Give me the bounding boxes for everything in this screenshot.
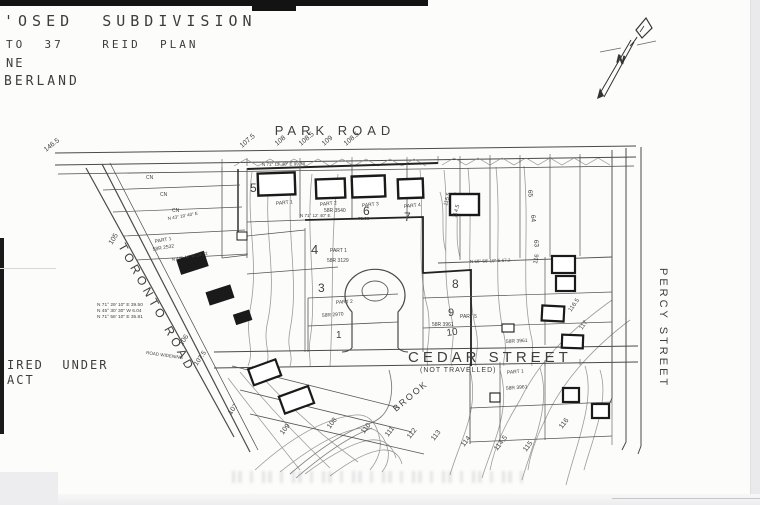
contour-label-107-5: 107.5	[239, 133, 257, 150]
contour-label-107-5b: 107.5	[193, 349, 208, 367]
north-arrow: N	[597, 18, 656, 99]
contour-label-117: 117	[579, 319, 590, 331]
bearing-right: N 68° 58' 10" E 67.2	[470, 258, 511, 264]
contour-lines	[228, 166, 630, 485]
plan-ref-3129: 58R 3129	[327, 258, 349, 264]
bearing-table: N 71° 29' 10" E 39.50 N 45° 30' 30" W 6.…	[97, 302, 143, 320]
lot-number-4: 4	[311, 242, 318, 257]
part-label-1: PART 1	[276, 199, 294, 207]
lot-number-9: 9	[448, 307, 454, 319]
road-label-park: PARK ROAD	[275, 123, 396, 138]
contour-label-116: 116	[558, 417, 570, 430]
lot-number-5: 5	[250, 181, 257, 195]
scan-edge-bottom-left	[0, 472, 58, 505]
contour-label-115: 115	[522, 440, 534, 453]
plan-drawing: N PARK ROAD TORONTO ROAD PERCY STREET CE…	[0, 0, 760, 505]
road-label-cedar: CEDAR STREET	[408, 349, 572, 366]
contour-label-110: 110	[360, 422, 372, 435]
contour-label-107b: 107	[227, 403, 240, 417]
watermark-strip	[232, 471, 524, 483]
scan-line-bottom-right	[612, 498, 760, 499]
part-label-5: PART 5	[460, 314, 477, 320]
lot-number-8: 8	[452, 277, 459, 291]
lot-number-3: 3	[318, 281, 325, 295]
bearing-mid-dist: 78.08	[358, 216, 370, 221]
scan-edge-right	[750, 0, 760, 505]
lot-number-1: 1	[336, 330, 342, 341]
contour-label-113: 113	[430, 429, 442, 442]
contour-label-146-5: 146.5	[43, 137, 61, 153]
part-label-1b: PART 1	[330, 248, 347, 254]
part-label-2b: PART 2	[336, 299, 354, 306]
contour-label-109b: 109	[279, 423, 292, 437]
part-label-3: PART 3	[362, 201, 380, 209]
bearing-table-row2: N 45° 30' 30" W 6.04	[97, 308, 142, 314]
scan-crease-line	[0, 268, 56, 269]
survey-mark-cn2: CN	[160, 192, 168, 198]
scanned-survey-plan: 'OSED SUBDIVISION TO 37 REID PLAN NE BER…	[0, 0, 760, 505]
plan-ref-3961a: 58R 3961	[432, 322, 454, 328]
bearing-mid: N 71° 12' 40" E	[300, 213, 331, 218]
contour-label-114-5: 114.5	[493, 434, 509, 452]
scan-edge-top-nub	[252, 0, 296, 11]
part-label-1c: PART 1	[507, 369, 525, 376]
lot-number-7: 7	[404, 210, 411, 224]
north-arrow-label: N	[615, 53, 626, 67]
bearing-top: N 71° 12' 40" E 99.78	[262, 161, 306, 167]
contour-label-105: 105	[108, 232, 120, 246]
contour-label-116b: 116	[533, 253, 541, 264]
survey-mark-cn1: CN	[146, 175, 154, 181]
lot-number-10: 10	[446, 326, 459, 339]
frontage-number-64: 64	[529, 215, 537, 223]
contour-label-114: 114	[460, 435, 472, 448]
part-label-4: PART 4	[404, 202, 422, 210]
contour-label-116-5: 116.5	[568, 297, 582, 313]
frontage-number-63: 63	[532, 240, 540, 248]
scan-edge-top-bar	[0, 0, 428, 6]
road-label-percy: PERCY STREET	[657, 268, 669, 388]
scan-edge-bottom	[0, 494, 760, 505]
bearing-table-row3: N 71° 58' 10" E 35.81	[97, 314, 143, 320]
plan-ref-3961b: 58R 3961	[506, 338, 528, 345]
plan-ref-2970: 58R 2970	[322, 311, 344, 319]
frontage-number-65: 65	[526, 190, 534, 198]
contour-label-112: 112	[406, 427, 418, 440]
brook-label: BROOK	[391, 379, 430, 414]
survey-mark-cn3: CN	[172, 208, 180, 214]
road-label-cedar-note: (NOT TRAVELLED)	[420, 367, 496, 374]
bearing-table-row1: N 71° 29' 10" E 39.50	[97, 302, 143, 308]
